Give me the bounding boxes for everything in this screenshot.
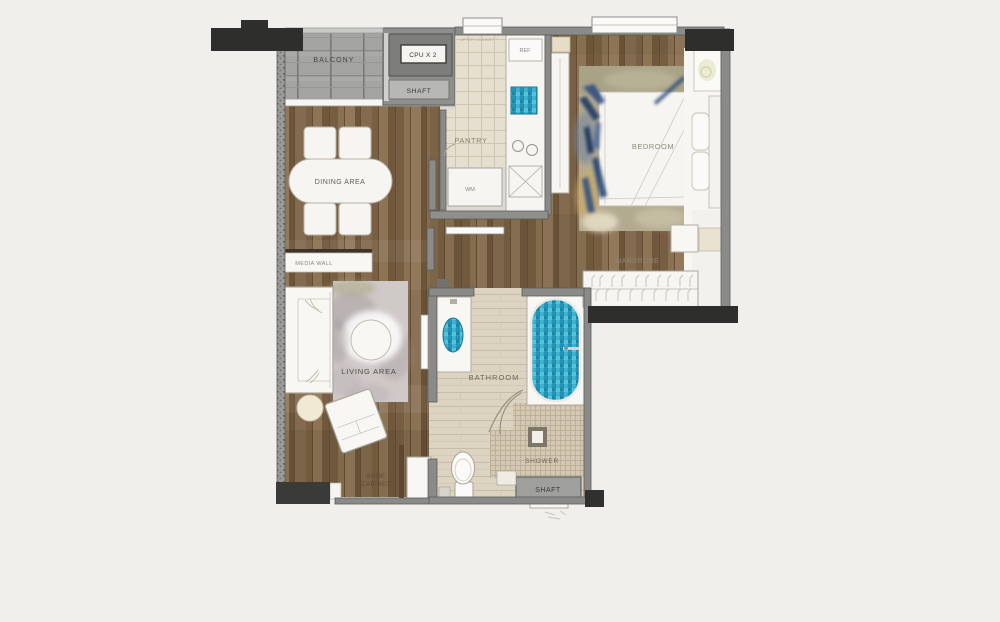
svg-text:PANTRY: PANTRY [454,136,487,145]
svg-text:MEDIA WALL: MEDIA WALL [295,261,332,267]
svg-text:REF: REF [520,48,532,54]
svg-text:WARDROBE: WARDROBE [615,258,659,265]
svg-text:LIVING AREA: LIVING AREA [341,367,397,376]
svg-text:BATHROOM: BATHROOM [469,373,520,382]
svg-text:SHAFT: SHAFT [535,487,561,494]
svg-text:CABINET: CABINET [361,482,391,488]
svg-text:CPU X 2: CPU X 2 [409,52,436,59]
svg-text:DINING AREA: DINING AREA [315,179,366,186]
svg-text:SHOE: SHOE [366,474,385,480]
svg-text:SHOWER: SHOWER [525,458,559,465]
svg-text:UPPER CABINET: UPPER CABINET [460,37,495,42]
svg-text:BALCONY: BALCONY [313,57,354,64]
svg-text:BEDROOM: BEDROOM [632,142,674,151]
svg-text:SHAFT: SHAFT [407,88,432,95]
svg-text:WM: WM [465,187,475,193]
